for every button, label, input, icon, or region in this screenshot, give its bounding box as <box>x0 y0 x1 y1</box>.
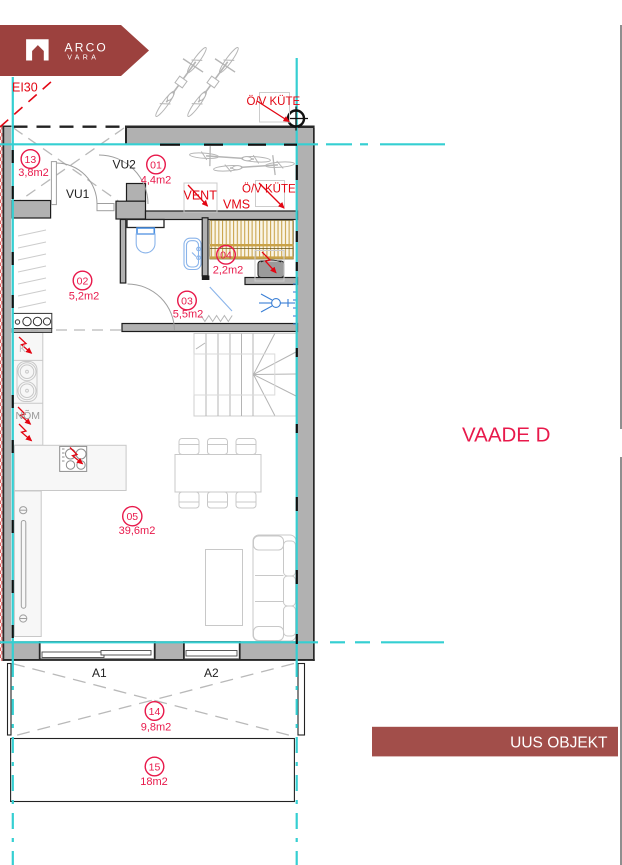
svg-text:2,2m2: 2,2m2 <box>213 265 244 277</box>
svg-text:VENT: VENT <box>184 189 218 203</box>
svg-text:VARA: VARA <box>67 55 99 62</box>
svg-text:A1: A1 <box>92 666 107 680</box>
svg-text:A2: A2 <box>204 666 219 680</box>
svg-text:K: K <box>19 343 26 355</box>
svg-text:4,4m2: 4,4m2 <box>141 175 172 187</box>
svg-text:ARCO: ARCO <box>65 41 108 55</box>
svg-text:Ö/V KÜTE: Ö/V KÜTE <box>247 96 301 108</box>
svg-text:EI30: EI30 <box>12 81 38 95</box>
svg-text:VU1: VU1 <box>66 187 90 201</box>
svg-text:3,8m2: 3,8m2 <box>18 167 49 179</box>
svg-text:UUS OBJEKT: UUS OBJEKT <box>510 734 608 751</box>
svg-text:04: 04 <box>220 250 232 262</box>
svg-text:15: 15 <box>149 761 161 773</box>
svg-text:14: 14 <box>149 706 161 718</box>
svg-text:39,6m2: 39,6m2 <box>119 525 156 537</box>
svg-text:01: 01 <box>150 159 162 171</box>
svg-text:05: 05 <box>126 511 138 523</box>
svg-text:NÕM: NÕM <box>16 409 41 422</box>
svg-text:VU2: VU2 <box>113 158 137 172</box>
svg-text:02: 02 <box>77 275 89 287</box>
svg-text:13: 13 <box>25 154 37 166</box>
svg-text:5,2m2: 5,2m2 <box>69 291 100 303</box>
svg-text:03: 03 <box>181 295 193 307</box>
svg-text:VMS: VMS <box>223 198 250 212</box>
svg-text:9,8m2: 9,8m2 <box>141 722 172 734</box>
svg-text:5,5m2: 5,5m2 <box>173 309 204 321</box>
svg-text:Ö/V KÜTE: Ö/V KÜTE <box>242 184 296 196</box>
svg-text:18m2: 18m2 <box>140 776 168 788</box>
svg-text:VAADE D: VAADE D <box>462 424 550 447</box>
